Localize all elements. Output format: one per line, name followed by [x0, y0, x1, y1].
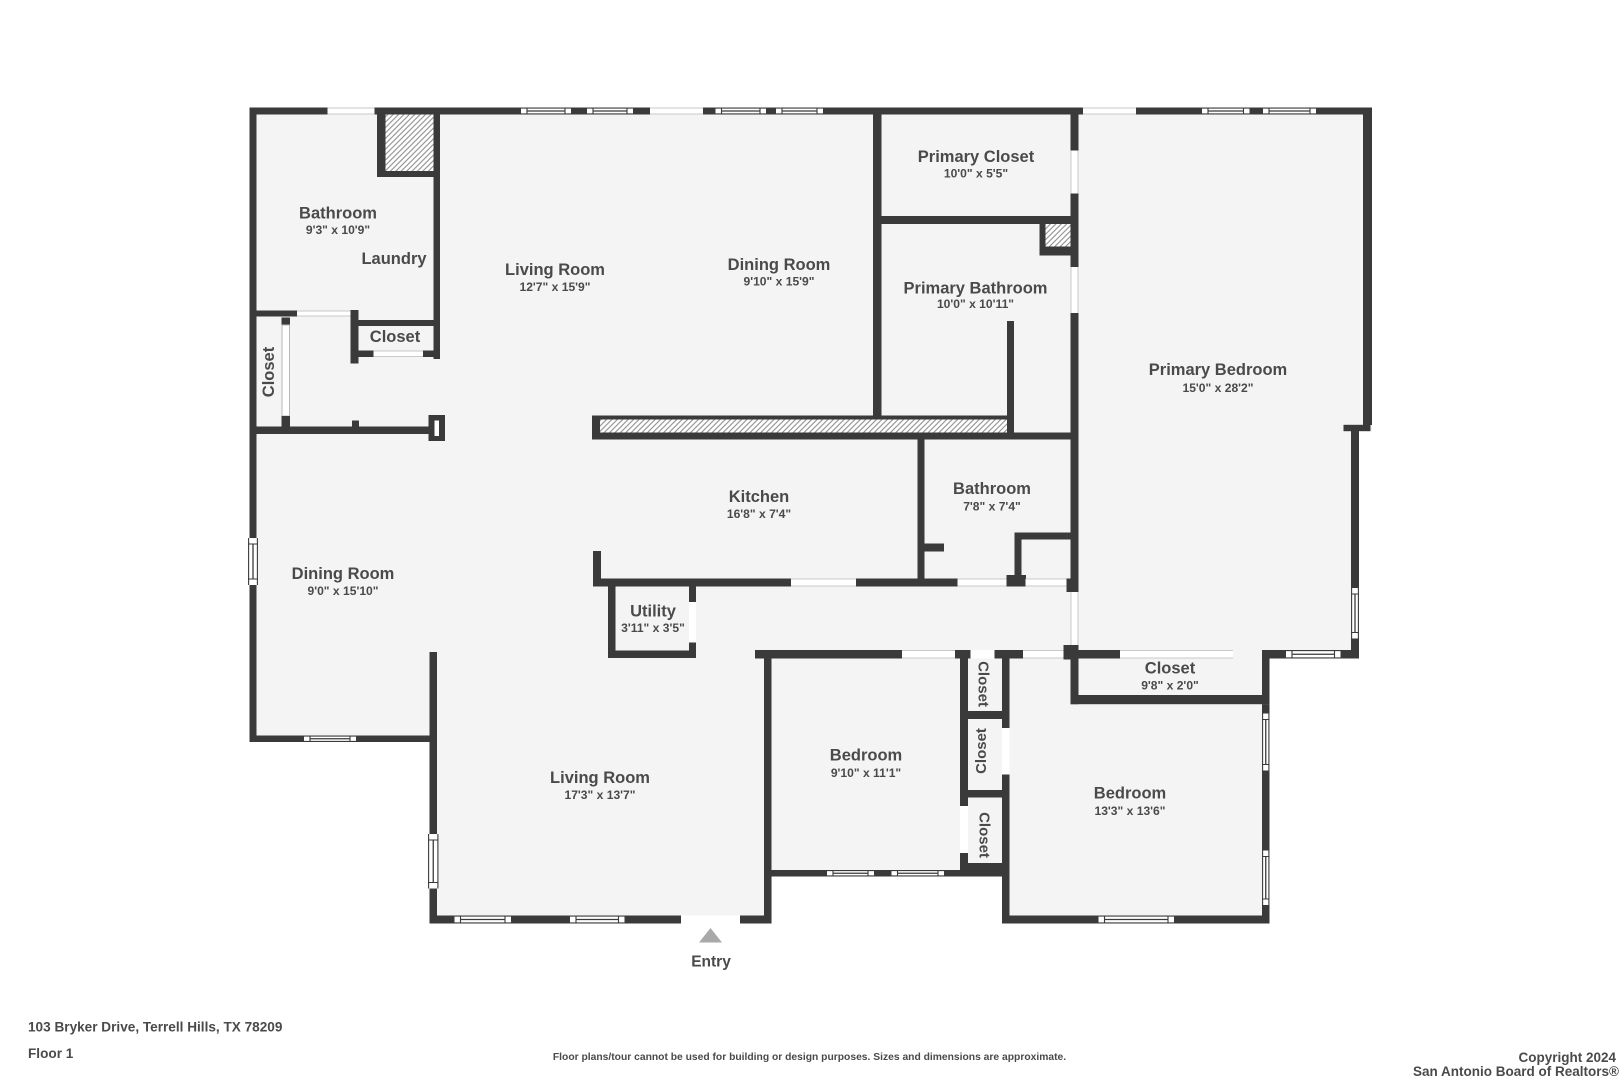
svg-text:Closet: Closet [976, 812, 993, 858]
svg-text:9'0" x 15'10": 9'0" x 15'10" [307, 584, 378, 598]
svg-text:9'10" x 11'1": 9'10" x 11'1" [831, 766, 901, 780]
svg-text:13'3" x 13'6": 13'3" x 13'6" [1094, 804, 1165, 818]
svg-text:Closet: Closet [1145, 660, 1196, 678]
svg-text:Closet: Closet [975, 661, 992, 707]
svg-text:103 Bryker Drive, Terrell Hill: 103 Bryker Drive, Terrell Hills, TX 7820… [28, 1020, 283, 1035]
svg-text:Closet: Closet [260, 346, 278, 397]
svg-text:3'11" x 3'5": 3'11" x 3'5" [621, 621, 685, 635]
svg-text:Living Room: Living Room [550, 769, 650, 787]
svg-text:16'8" x 7'4": 16'8" x 7'4" [727, 507, 791, 521]
svg-text:Primary Bedroom: Primary Bedroom [1149, 361, 1287, 379]
svg-text:Closet: Closet [973, 728, 990, 774]
svg-text:Bathroom: Bathroom [299, 205, 377, 223]
svg-text:Dining Room: Dining Room [292, 565, 395, 583]
svg-text:Primary Bathroom: Primary Bathroom [904, 280, 1048, 298]
svg-text:12'7" x 15'9": 12'7" x 15'9" [519, 280, 590, 294]
svg-text:Closet: Closet [370, 328, 421, 346]
svg-text:Bedroom: Bedroom [830, 747, 902, 765]
svg-text:Dining Room: Dining Room [728, 256, 831, 274]
svg-text:7'8" x 7'4": 7'8" x 7'4" [963, 500, 1021, 514]
svg-text:Floor plans/tour cannot be use: Floor plans/tour cannot be used for buil… [553, 1052, 1066, 1063]
svg-text:10'0" x 5'5": 10'0" x 5'5" [944, 167, 1008, 181]
svg-text:Utility: Utility [630, 603, 677, 621]
svg-text:Copyright 2024: Copyright 2024 [1518, 1050, 1616, 1065]
svg-text:Bathroom: Bathroom [953, 480, 1031, 498]
svg-text:17'3" x 13'7": 17'3" x 13'7" [564, 788, 635, 802]
svg-text:Floor 1: Floor 1 [28, 1046, 74, 1061]
svg-text:9'10" x 15'9": 9'10" x 15'9" [743, 275, 814, 289]
svg-text:10'0" x 10'11": 10'0" x 10'11" [937, 297, 1014, 311]
svg-text:15'0" x 28'2": 15'0" x 28'2" [1182, 381, 1253, 395]
svg-text:San Antonio Board of Realtors®: San Antonio Board of Realtors® [1413, 1064, 1619, 1079]
svg-text:Living Room: Living Room [505, 261, 605, 279]
svg-text:Bedroom: Bedroom [1094, 785, 1166, 803]
svg-text:Primary Closet: Primary Closet [918, 148, 1035, 166]
svg-text:Entry: Entry [691, 954, 731, 971]
svg-text:Laundry: Laundry [361, 250, 427, 268]
svg-text:9'3" x 10'9": 9'3" x 10'9" [306, 223, 370, 237]
svg-text:Kitchen: Kitchen [729, 488, 790, 506]
svg-text:9'8" x 2'0": 9'8" x 2'0" [1141, 679, 1199, 693]
